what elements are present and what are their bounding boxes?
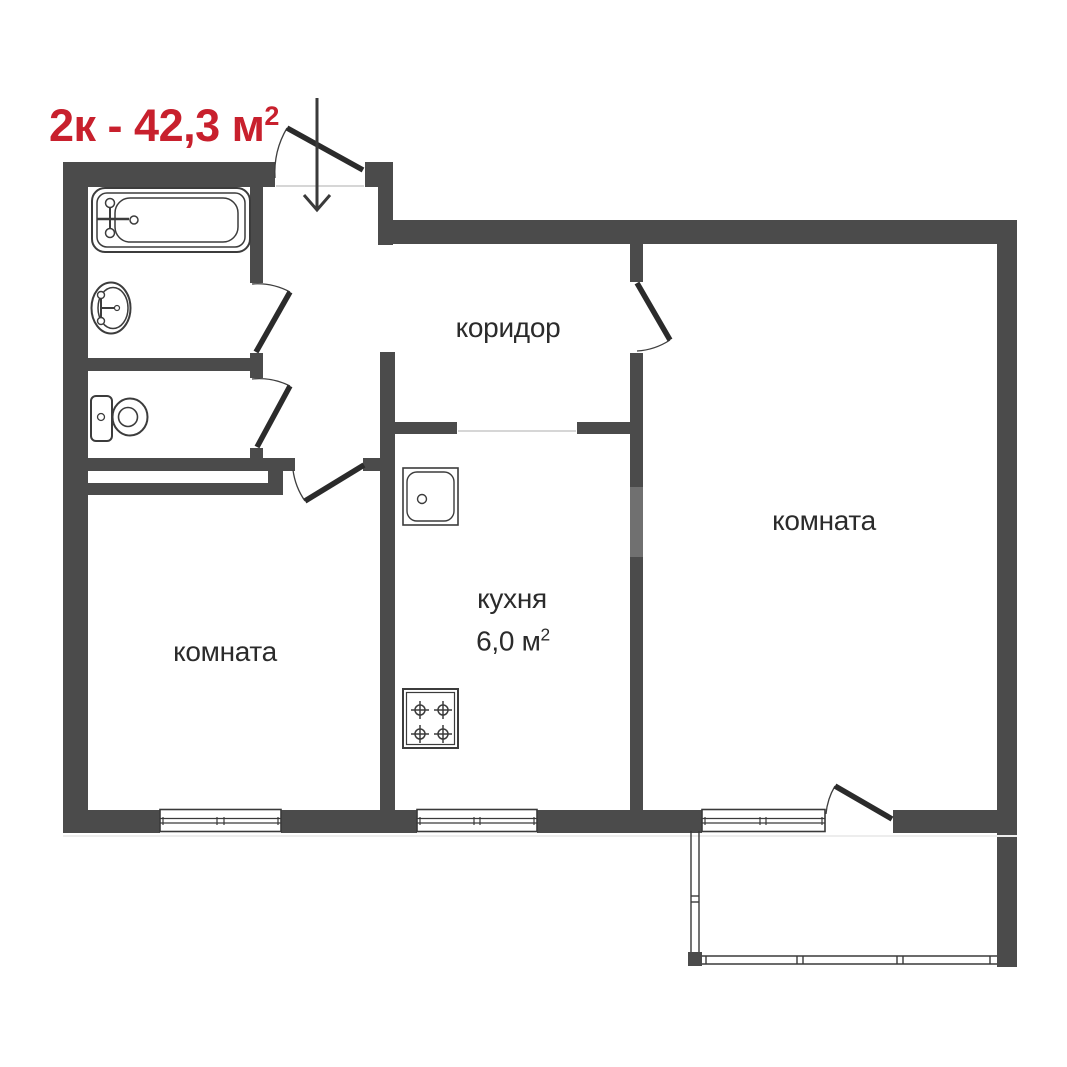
wall-segment [380,352,395,822]
wall-segment [63,162,88,833]
wall-segment [893,810,1017,833]
door-leaf [256,292,290,352]
label-room-right: комната [772,505,876,537]
wall-segment [393,422,457,434]
wall-segment [997,220,1017,967]
door-leaf [287,128,363,170]
balcony-corner-post [688,952,702,966]
right-room-door [637,283,670,351]
door-swing-arc [252,379,290,386]
door-swing-arc [637,340,670,351]
entrance-door [275,128,363,178]
label-kitchen-area: 6,0 м2 [476,624,550,657]
label-corridor: коридор [456,312,561,344]
wall-segment [63,162,275,187]
balcony-door [826,786,892,819]
wall-segment [250,353,263,378]
wall-segment [281,810,417,833]
door-swing-arc [826,786,835,814]
label-kitchen: кухня [477,583,547,615]
door-swing-arc [252,284,290,292]
inner-walls [88,187,643,822]
wall-watermark-patch [630,487,643,557]
kitchen-sink-icon [403,468,458,525]
bathtub-icon [92,188,250,252]
wall-segment [63,810,160,833]
bathroom-door [252,284,290,352]
toilet-icon [91,396,148,441]
floor-plan-page: 2к - 42,3 м2 коридор кухня 6,0 м2 комнат… [0,0,1067,1067]
closet-wall [268,458,283,495]
window-frame [160,810,281,832]
door-leaf [257,386,290,447]
wall-segment [88,358,260,371]
balcony-glazing [688,831,997,966]
bathroom-sink-icon [92,283,131,334]
closet-wall [88,483,283,495]
kitchen-area-sup: 2 [541,624,550,644]
door-leaf [637,283,670,340]
floor-plan-drawing [0,0,1067,1067]
left-room-door [293,465,364,501]
plan-title-text: 2к - 42,3 м [49,100,264,151]
wall-segment [630,244,643,282]
left-room-window [160,810,281,832]
label-room-left: комната [173,636,277,668]
kitchen-window [417,810,537,832]
wall-segment [378,187,393,245]
wall-segment [88,458,295,471]
plan-title-sup: 2 [264,101,279,131]
wall-segment [365,162,393,187]
kitchen-area-value: 6,0 м [476,626,540,657]
window-frame [417,810,537,832]
window-frame [702,810,825,832]
entrance-arrow-icon [304,98,330,210]
door-leaf [835,786,892,819]
wall-segment [250,187,263,283]
outer-walls [63,162,1017,967]
wall-segment [393,220,1017,244]
toilet-door [252,379,290,447]
door-swing-arc [293,470,305,501]
wall-segment [630,353,643,810]
stove-icon [403,689,458,748]
balcony-window [702,810,825,832]
door-leaf [305,465,364,501]
wall-segment [537,810,702,833]
plan-title: 2к - 42,3 м2 [49,100,279,152]
